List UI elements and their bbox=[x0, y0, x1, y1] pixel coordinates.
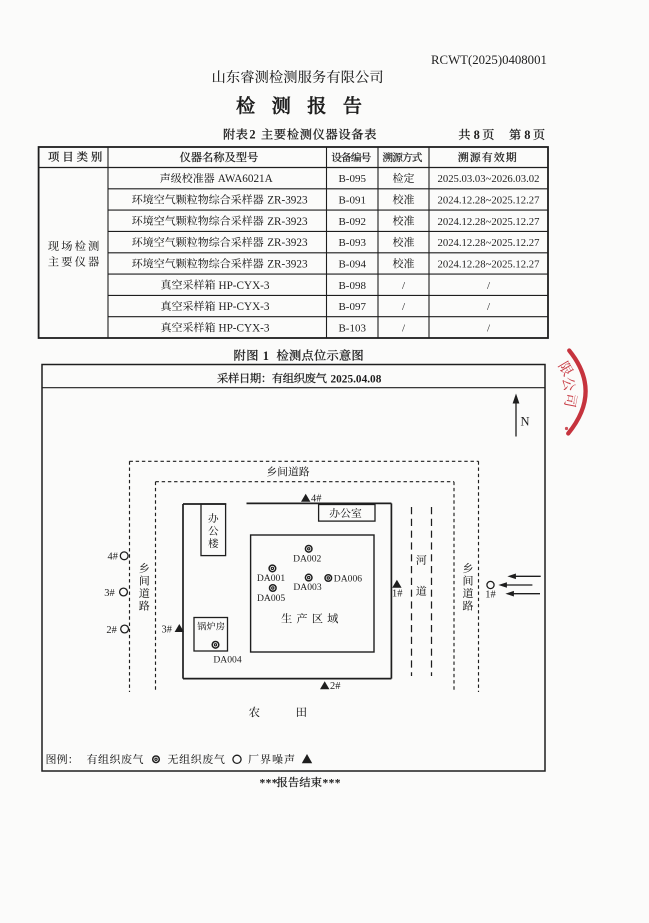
svg-text:***: *** bbox=[260, 777, 278, 789]
svg-text:B-091: B-091 bbox=[338, 194, 366, 206]
svg-text:AWA6021A: AWA6021A bbox=[218, 173, 273, 185]
svg-text:N: N bbox=[521, 415, 530, 429]
svg-text:8: 8 bbox=[474, 128, 480, 142]
svg-text:8: 8 bbox=[524, 128, 530, 142]
svg-text:ZR-3923: ZR-3923 bbox=[267, 194, 308, 206]
svg-text:4#: 4# bbox=[108, 552, 118, 563]
svg-text:2: 2 bbox=[249, 128, 255, 142]
svg-text:2024.12.28~2025.12.27: 2024.12.28~2025.12.27 bbox=[438, 216, 541, 228]
svg-text:RCWT(2025)0408001: RCWT(2025)0408001 bbox=[431, 53, 547, 67]
svg-text:1: 1 bbox=[263, 349, 269, 363]
svg-text:2024.12.28~2025.12.27: 2024.12.28~2025.12.27 bbox=[438, 194, 541, 206]
svg-text:DA001: DA001 bbox=[257, 573, 285, 584]
svg-text:B-097: B-097 bbox=[338, 301, 366, 313]
svg-text:HP-CYX-3: HP-CYX-3 bbox=[219, 280, 270, 292]
svg-text:DA004: DA004 bbox=[213, 654, 241, 665]
svg-text:B-094: B-094 bbox=[338, 258, 366, 270]
svg-text:B-092: B-092 bbox=[338, 216, 366, 228]
svg-text:3#: 3# bbox=[104, 588, 114, 599]
svg-text:HP-CYX-3: HP-CYX-3 bbox=[219, 301, 270, 313]
svg-text:4#: 4# bbox=[311, 494, 321, 505]
svg-text:1#: 1# bbox=[485, 590, 495, 601]
svg-text:B-098: B-098 bbox=[338, 280, 366, 292]
svg-text:2#: 2# bbox=[330, 681, 340, 692]
svg-text:2024.12.28~2025.12.27: 2024.12.28~2025.12.27 bbox=[438, 258, 541, 270]
svg-text:DA002: DA002 bbox=[293, 553, 321, 564]
svg-text:2025.03.03~2026.03.02: 2025.03.03~2026.03.02 bbox=[438, 173, 540, 185]
svg-text:ZR-3923: ZR-3923 bbox=[267, 216, 308, 228]
svg-text:ZR-3923: ZR-3923 bbox=[267, 237, 308, 249]
svg-text:2024.12.28~2025.12.27: 2024.12.28~2025.12.27 bbox=[438, 237, 541, 249]
svg-text:2025.04.08: 2025.04.08 bbox=[331, 373, 382, 385]
svg-text:DA003: DA003 bbox=[293, 582, 321, 593]
svg-text:HP-CYX-3: HP-CYX-3 bbox=[219, 322, 270, 334]
svg-text:3#: 3# bbox=[162, 624, 172, 635]
svg-text:***: *** bbox=[323, 777, 341, 789]
svg-text:B-103: B-103 bbox=[338, 322, 366, 334]
svg-text:2#: 2# bbox=[106, 625, 116, 636]
svg-text:DA005: DA005 bbox=[257, 593, 285, 604]
svg-text:B-093: B-093 bbox=[338, 237, 366, 249]
svg-text:DA006: DA006 bbox=[334, 574, 362, 585]
svg-text:B-095: B-095 bbox=[338, 173, 366, 185]
svg-text:ZR-3923: ZR-3923 bbox=[267, 258, 308, 270]
svg-text:1#: 1# bbox=[392, 589, 402, 600]
